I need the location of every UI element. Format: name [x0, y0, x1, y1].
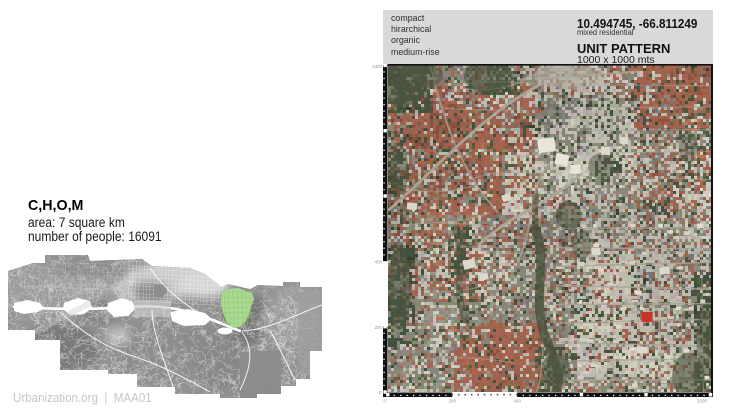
svg-text:1000: 1000: [372, 64, 383, 69]
svg-text:200: 200: [374, 325, 382, 330]
svg-text:400: 400: [513, 399, 521, 404]
svg-text:1000: 1000: [697, 399, 708, 404]
svg-text:0: 0: [379, 390, 382, 395]
svg-text:0: 0: [384, 399, 387, 404]
svg-text:200: 200: [448, 399, 456, 404]
svg-text:400: 400: [374, 260, 382, 265]
